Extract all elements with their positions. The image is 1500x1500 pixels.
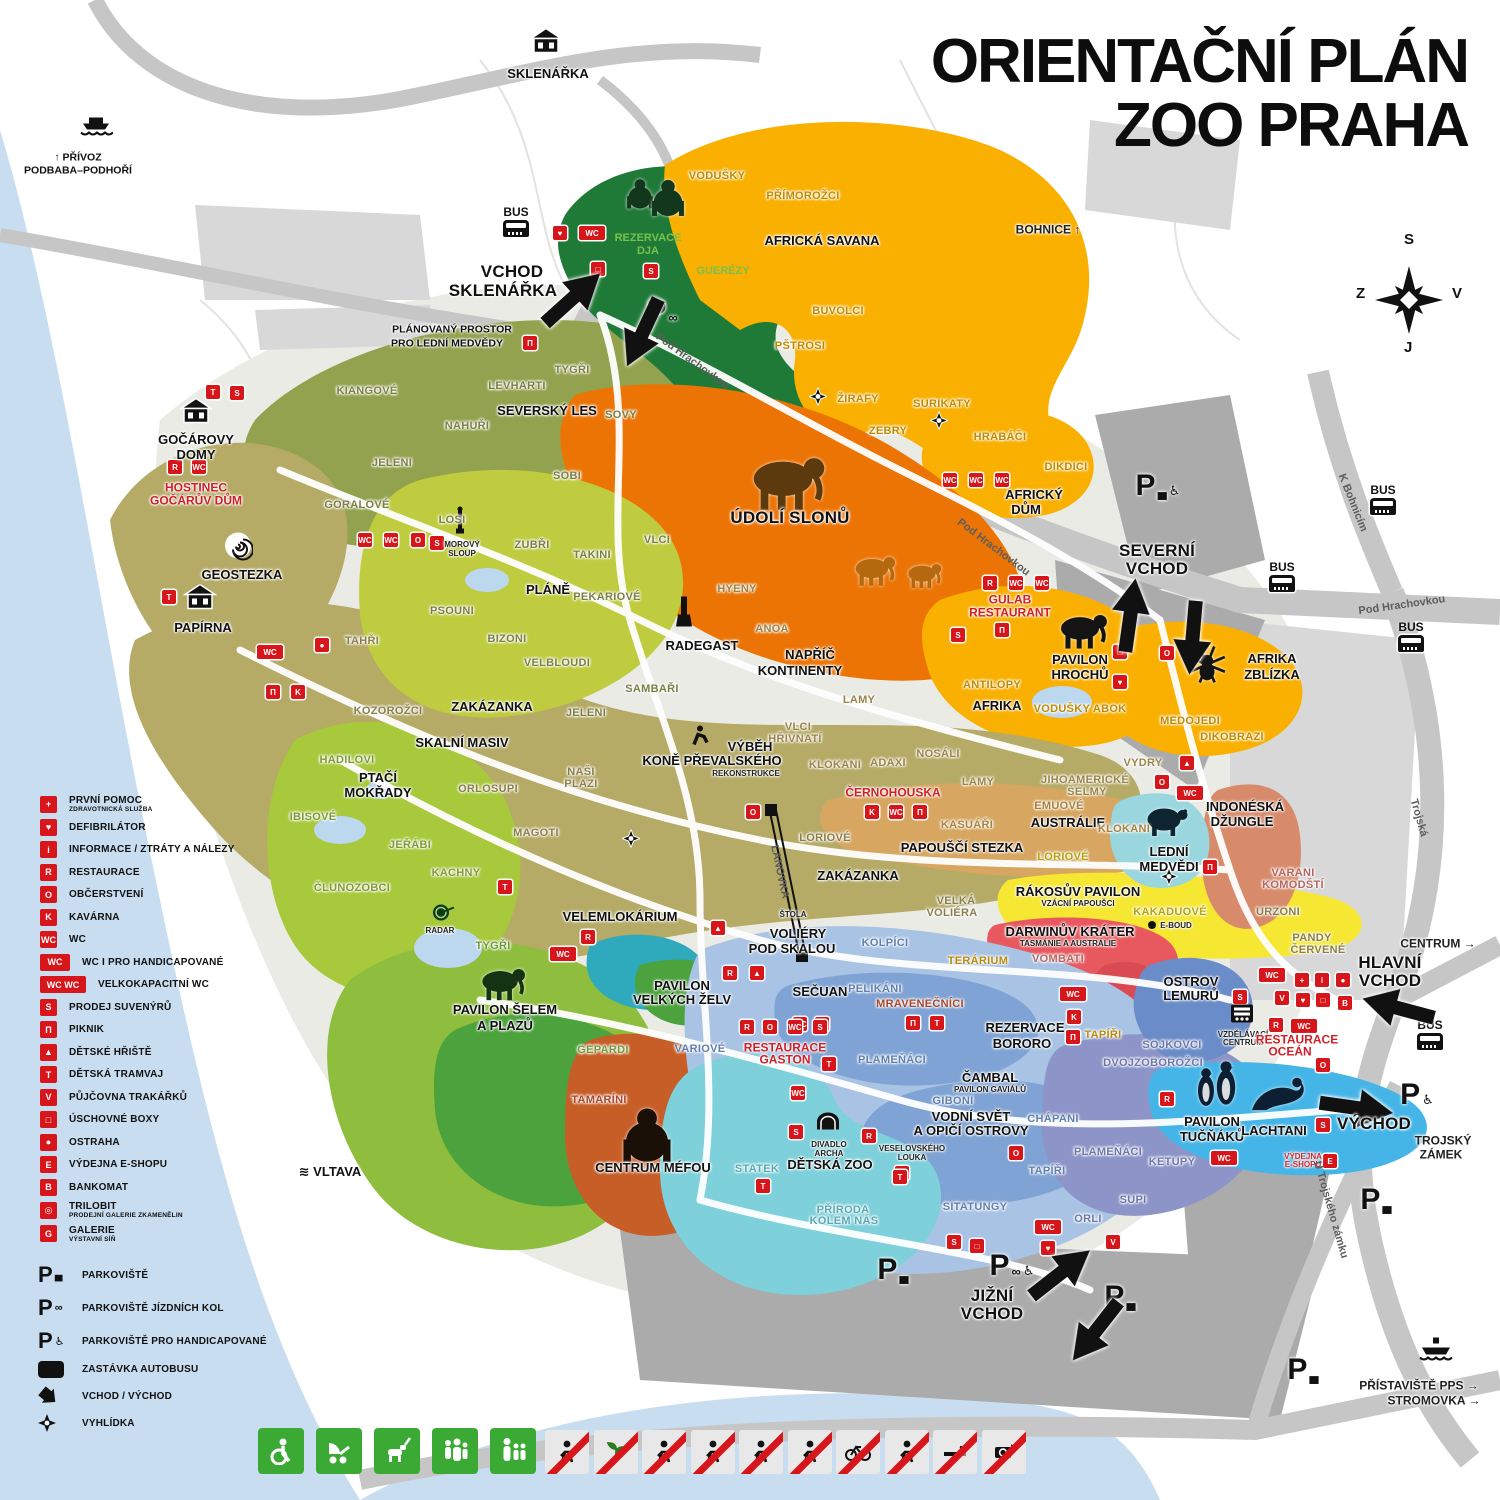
legend-icon-galerie: G: [40, 1225, 57, 1242]
legend-icon-defibril-tor: ♥: [40, 819, 57, 836]
legend-icon-ob-erstven: O: [40, 886, 57, 903]
facility-marker-icon[interactable]: S: [813, 1020, 827, 1034]
facility-marker-icon[interactable]: B: [1338, 996, 1352, 1010]
facility-marker-icon[interactable]: T: [162, 590, 176, 604]
map-label-zak-zanka: ZAKÁZANKA: [451, 700, 533, 714]
map-label-se-uan: SEČUAN: [793, 985, 848, 999]
map-label-ostrov: OSTROV: [1164, 975, 1219, 989]
legend-icon-wc: WC: [40, 931, 57, 948]
map-label-vz-cn-papou-ci: VZÁCNÍ PAPOUŠCI: [1041, 900, 1114, 908]
facility-marker-icon[interactable]: T: [822, 1057, 836, 1071]
legend-icon-velkokapacitn-wc: WC WC: [40, 976, 86, 993]
facility-marker-icon[interactable]: S: [644, 264, 658, 278]
facility-marker-icon[interactable]: WC: [791, 1086, 805, 1100]
map-label-tasm-nie-a-austr-lie: TASMÁNIE A AUSTRÁLIE: [1020, 940, 1116, 948]
map-label-pap-rna: PAPÍRNA: [174, 621, 232, 635]
map-label-ketupy: KETUPY: [1149, 1157, 1195, 1169]
legend-label-wc: WC: [69, 934, 86, 945]
facility-marker-icon[interactable]: S: [230, 386, 244, 400]
map-label-kolem-n-s: KOLEM NÁS: [810, 1216, 879, 1228]
facility-marker-icon[interactable]: WC: [1211, 1151, 1237, 1165]
map-label-radar: RADAR: [426, 927, 455, 935]
legend-item: WCWC I PRO HANDICAPOVANÉ: [40, 954, 235, 971]
legend-item: RRESTAURACE: [40, 864, 235, 881]
map-label-urzoni: URZONI: [1256, 907, 1300, 919]
legend-label-v-dejna-e-shopu: VÝDEJNA E-SHOPU: [69, 1159, 167, 1170]
no-climbing-icon: [691, 1430, 735, 1474]
map-label-ledn: LEDNÍ: [1150, 845, 1189, 859]
map-label-lachtani: LACHTANI: [1241, 1124, 1306, 1138]
bus-stop-icon[interactable]: BUS: [1370, 483, 1396, 515]
legend-icon-prodej-suven-r: S: [40, 999, 57, 1016]
map-label-rekonstrukce: REKONSTRUKCE: [712, 770, 780, 778]
facility-marker-icon[interactable]: R: [581, 930, 595, 944]
facility-marker-icon[interactable]: R: [1160, 1092, 1174, 1106]
map-label-d-m: DŮM: [1011, 503, 1041, 517]
map-label-adaxi: ADAXI: [870, 758, 906, 770]
parking-car-icon[interactable]: P▄: [1360, 1183, 1391, 1217]
map-label-guer-zy: GUERÉZY: [696, 266, 749, 278]
facility-marker-icon[interactable]: □: [1316, 993, 1330, 1007]
map-label-hroch: HROCHŮ: [1051, 668, 1108, 682]
legend-label-informace-ztr-ty-a-n-lezy: INFORMACE / ZTRÁTY A NÁLEZY: [69, 844, 235, 855]
animal-silhouette-ape: [647, 177, 689, 224]
facility-marker-icon[interactable]: R: [983, 576, 997, 590]
legend-item: VPŮJČOVNA TRAKÁŘKŮ: [40, 1089, 235, 1106]
map-label-bohnice: BOHNICE ↑: [1016, 224, 1081, 237]
map-label-pelik-ni: PELIKÁNI: [848, 984, 902, 996]
map-label-zub-i: ZUBŘI: [514, 540, 549, 552]
map-label-tola: ŠTOLA: [780, 911, 807, 919]
page-title: ORIENTAČNÍ PLÁN ZOO PRAHA: [931, 30, 1468, 159]
map-label-a-opi-ostrovy: A OPIČÍ OSTROVY: [913, 1124, 1028, 1138]
map-label-dikobrazi: DIKOBRAZI: [1200, 732, 1264, 744]
group-icon: [490, 1428, 536, 1474]
facility-marker-icon[interactable]: O: [1009, 1146, 1023, 1160]
map-label-pta: PTAČÍ: [359, 771, 397, 785]
facility-marker-icon[interactable]: E: [1323, 1154, 1337, 1168]
facility-marker-icon[interactable]: +: [1295, 973, 1309, 987]
animal-silhouette-quad: [848, 552, 896, 592]
legend-icon-kav-rna: K: [40, 909, 57, 926]
facility-marker-icon[interactable]: WC: [1177, 786, 1203, 800]
map-label-orli: ORLI: [1074, 1214, 1101, 1226]
legend-item: EVÝDEJNA E-SHOPU: [40, 1156, 235, 1173]
gocarovy-domy-icon: [179, 399, 213, 430]
map-label-bororo: BORORO: [993, 1037, 1052, 1051]
map-label-v-b-h: VÝBĚH: [728, 740, 773, 754]
map-label-vlci: VLCI: [644, 535, 670, 547]
facility-marker-icon[interactable]: □: [970, 1239, 984, 1253]
map-label-goralov: GORALOVÉ: [324, 500, 389, 512]
legend-icon-schovn-boxy: □: [40, 1111, 57, 1128]
map-label-p-voz: ↑ PŘÍVOZ: [54, 152, 101, 163]
legend-item: BBANKOMAT: [40, 1179, 235, 1196]
parking-hc-icon[interactable]: P♿: [1400, 1078, 1434, 1112]
facility-marker-icon[interactable]: ♥: [1296, 993, 1310, 1007]
map-label-dvojzoboro-ci: DVOJZOBOROŽCI: [1103, 1058, 1203, 1070]
facility-marker-icon[interactable]: WC: [1291, 1019, 1317, 1033]
facility-marker-icon[interactable]: ♥: [1113, 675, 1127, 689]
facility-marker-icon[interactable]: T: [893, 1170, 907, 1184]
map-label-anoa: ANOA: [755, 624, 789, 636]
facility-marker-icon[interactable]: Π: [266, 685, 280, 699]
legend-label-prodej-suven-r: PRODEJ SUVENÝRŮ: [69, 1002, 171, 1013]
map-label-voli-ra: VOLIÉRA: [927, 908, 978, 920]
facility-marker-icon[interactable]: WC: [1035, 1220, 1061, 1234]
legend-item: ◎TRILOBITPRODEJNÍ GALERIE ZKAMENĚLIN: [40, 1201, 235, 1219]
compass-s: J: [1404, 339, 1412, 356]
compass-w: Z: [1356, 285, 1365, 302]
legend-item: ▲DĚTSKÉ HŘIŠTĚ: [40, 1044, 235, 1061]
map-label-emuov: EMUOVÉ: [1034, 801, 1083, 813]
facility-marker-icon[interactable]: Π: [913, 805, 927, 819]
entrance-arrow-icon: [1164, 599, 1215, 679]
map-label-ji-n: JIŽNÍ: [971, 1287, 1014, 1305]
map-label-domy: DOMY: [177, 448, 216, 462]
facility-marker-icon[interactable]: K: [865, 805, 879, 819]
map-label-afrika: AFRIKA: [972, 699, 1021, 713]
legend-label-ob-erstven: OBČERSTVENÍ: [69, 889, 143, 900]
facility-marker-icon[interactable]: WC: [889, 805, 903, 819]
facility-marker-icon[interactable]: T: [930, 1016, 944, 1030]
pram-icon: [316, 1428, 362, 1474]
facility-marker-icon[interactable]: WC: [995, 473, 1009, 487]
legend-services: +PRVNÍ POMOCZDRAVOTNICKÁ SLUŽBA♥DEFIBRIL…: [40, 795, 235, 1248]
facility-marker-icon[interactable]: V: [1275, 991, 1289, 1005]
facility-marker-icon[interactable]: O: [1316, 1058, 1330, 1072]
facility-marker-icon[interactable]: S: [430, 536, 444, 550]
map-label-rezervace: REZERVACE: [986, 1021, 1065, 1035]
map-label-darwin-v-kr-ter: DARWINŮV KRÁTER: [1005, 925, 1134, 939]
map-label-d-ungle: DŽUNGLE: [1211, 815, 1274, 829]
animal-silhouette-quad: [902, 560, 942, 594]
facility-marker-icon[interactable]: R: [740, 1020, 754, 1034]
no-flash-photo-icon: [982, 1430, 1026, 1474]
map-label-sklen-ka: SKLENÁŘKA: [507, 67, 589, 81]
map-label-na-i: NAŠI: [567, 767, 594, 779]
no-smoking-icon: [933, 1430, 977, 1474]
map-label-radegast: RADEGAST: [666, 639, 739, 653]
map-label-vchod: VCHOD: [961, 1305, 1023, 1323]
map-label-pavilon: PAVILON: [654, 979, 710, 993]
map-label-variov: VARIOVÉ: [675, 1044, 726, 1056]
map-label-nap: NAPŘÍČ: [785, 648, 835, 662]
no-feeding-icon: [545, 1430, 589, 1474]
map-label-takini: TAKINI: [573, 550, 611, 562]
facility-marker-icon[interactable]: ▲: [711, 921, 725, 935]
map-label-ch-pani: CHÁPANI: [1027, 1114, 1078, 1126]
map-label-voli-ry: VOLIÉRY: [770, 927, 827, 941]
map-label-d-tsk-zoo: DĚTSKÁ ZOO: [787, 1158, 872, 1172]
map-label-tah-i: TAHŘI: [345, 636, 379, 648]
map-label-lamy: LAMY: [962, 777, 994, 789]
facility-marker-icon[interactable]: R: [1269, 1018, 1283, 1032]
facility-marker-icon[interactable]: ▲: [750, 966, 764, 980]
radegast-statue-icon: [676, 595, 692, 634]
legend-icon-wc-i-pro-handicapovan: WC: [40, 954, 70, 971]
legend-label-galerie: GALERIEVÝSTAVNÍ SÍŇ: [69, 1225, 116, 1243]
map-label-bizoni: BIZONI: [487, 634, 526, 646]
no-teasing-icon: [739, 1430, 783, 1474]
map-label-centrum: CENTRUM →: [1400, 938, 1475, 951]
map-label-louka: LOUKA: [898, 1154, 926, 1162]
legend-icon-v-dejna-e-shopu: E: [40, 1156, 57, 1173]
map-label-hadilovi: HADILOVI: [320, 755, 375, 767]
vzdelavaci-centrum-icon: [1231, 1005, 1253, 1028]
map-label-je-bi: JEŘÁBI: [389, 840, 431, 852]
map-label-velemlok-rium: VELEMLOKÁRIUM: [563, 910, 678, 924]
legend-item: VCHOD / VÝCHOD: [38, 1385, 267, 1407]
map-label-geostezka: GEOSTEZKA: [202, 568, 283, 582]
map-label-pandy: PANDY: [1292, 933, 1331, 945]
facility-marker-icon[interactable]: WC: [1259, 968, 1285, 982]
map-label-psouni: PSOUNI: [430, 606, 474, 618]
map-label-medv-di: MEDVĚDI: [1139, 860, 1198, 874]
map-label-kontinenty: KONTINENTY: [758, 664, 843, 678]
animal-silhouette-quad: [1052, 609, 1108, 654]
map-label-go-r-v-d-m: GOČÁRŮV DŮM: [150, 495, 242, 508]
facility-marker-icon[interactable]: V: [1106, 1235, 1120, 1249]
bus-stop-icon[interactable]: BUS: [1269, 560, 1295, 592]
map-label-v-chod: VÝCHOD: [1337, 1115, 1411, 1133]
legend-item: ZASTÁVKA AUTOBUSU: [38, 1361, 267, 1378]
facility-marker-icon[interactable]: WC: [969, 473, 983, 487]
facility-marker-icon[interactable]: K: [1067, 1010, 1081, 1024]
facility-marker-icon[interactable]: T: [756, 1179, 770, 1193]
legend-item: P∞PARKOVIŠTĚ JÍZDNÍCH KOL: [38, 1295, 267, 1321]
map-label-pavilon: PAVILON: [1052, 653, 1108, 667]
facility-marker-icon[interactable]: S: [1233, 990, 1247, 1004]
no-picking-plants-icon: [594, 1430, 638, 1474]
viewpoint-icon: [809, 388, 827, 411]
facility-marker-icon[interactable]: i: [1315, 973, 1329, 987]
map-label-dol-slon: ÚDOLÍ SLONŮ: [730, 509, 849, 527]
facility-marker-icon[interactable]: O: [763, 1020, 777, 1034]
map-label-oce-n: OCEÁN: [1268, 1046, 1311, 1059]
map-label-nos-li: NOSÁLI: [916, 749, 959, 761]
legend-label-schovn-boxy: ÚSCHOVNÉ BOXY: [69, 1114, 159, 1125]
facility-marker-icon[interactable]: ♥: [553, 226, 567, 240]
map-label-mravene-n-ci: MRAVENEČNÍCI: [876, 999, 964, 1011]
map-label-jeleni: JELENI: [566, 708, 606, 720]
map-label-kiangov: KIANGOVÉ: [336, 386, 397, 398]
map-label-afrika: AFRIKA: [1247, 652, 1296, 666]
map-label-nahu-i: NAHUŘI: [445, 421, 490, 433]
map-label-loriov: LORIOVÉ: [799, 833, 851, 845]
map-label-plame-ci: PLAMEŇÁCI: [858, 1055, 926, 1067]
legend-label-defibril-tor: DEFIBRILÁTOR: [69, 822, 146, 833]
ferry-icon: [79, 114, 113, 143]
map-label-stromovka: STROMOVKA →: [1388, 1395, 1481, 1408]
map-label-zbl-zka: ZBLÍZKA: [1244, 668, 1300, 682]
facility-marker-icon[interactable]: Π: [1066, 1030, 1080, 1044]
legend-item: ●OSTRAHA: [40, 1134, 235, 1151]
legend-icon-p-j-ovna-trak-k: V: [40, 1089, 57, 1106]
facility-marker-icon[interactable]: O: [411, 533, 425, 547]
legend-label-zast-vka-autobusu: ZASTÁVKA AUTOBUSU: [82, 1364, 198, 1375]
map-label-severn: SEVERNÍ: [1119, 542, 1195, 560]
legend-label-prvn-pomoc: PRVNÍ POMOCZDRAVOTNICKÁ SLUŽBA: [69, 795, 152, 813]
wheelchair-icon: [258, 1428, 304, 1474]
map-label-kozoro-ci: KOZOROŽCI: [354, 706, 423, 718]
map-label-r-kos-v-pavilon: RÁKOSŮV PAVILON: [1016, 885, 1140, 899]
facility-marker-icon[interactable]: WC: [788, 1020, 802, 1034]
map-label-pekariov: PEKARIOVÉ: [573, 592, 641, 604]
facility-marker-icon[interactable]: WC: [358, 533, 372, 547]
facility-marker-icon[interactable]: ●: [315, 638, 329, 652]
legend-item: +PRVNÍ POMOCZDRAVOTNICKÁ SLUŽBA: [40, 795, 235, 813]
map-label-hlavn: HLAVNÍ: [1358, 954, 1421, 972]
map-label-orlosupi: ORLOSUPI: [458, 784, 518, 796]
map-label-dikdici: DIKDICI: [1044, 462, 1087, 474]
legend-label-trilobit: TRILOBITPRODEJNÍ GALERIE ZKAMENĚLIN: [69, 1201, 183, 1219]
facility-marker-icon[interactable]: T: [498, 880, 512, 894]
facility-marker-icon[interactable]: ▲: [1180, 756, 1194, 770]
facility-marker-icon[interactable]: WC: [579, 226, 605, 240]
legend-item: ♥DEFIBRILÁTOR: [40, 819, 235, 836]
legend-label-wc-i-pro-handicapovan: WC I PRO HANDICAPOVANÉ: [82, 957, 223, 968]
legend-icon-zast-vka-autobusu: [38, 1361, 72, 1378]
map-label-centrum-m-fou: CENTRUM MÉFOU: [595, 1161, 711, 1175]
map-label-jeleni: JELENI: [372, 458, 412, 470]
facility-marker-icon[interactable]: K: [291, 685, 305, 699]
map-label-pavilon-elem: PAVILON ŠELEM: [453, 1003, 557, 1017]
map-label-sklen-ka: SKLENÁŘKA: [449, 282, 558, 300]
map-label-rezervace: REZERVACE: [615, 233, 682, 245]
facility-marker-icon[interactable]: ●: [1336, 973, 1350, 987]
bus-stop-icon[interactable]: BUS: [1398, 620, 1424, 652]
legend-icon-bankomat: B: [40, 1179, 57, 1196]
map-label-skaln-masiv: SKALNÍ MASIV: [415, 736, 508, 750]
legend-label-d-tsk-tramvaj: DĚTSKÁ TRAMVAJ: [69, 1069, 163, 1080]
legend-icon-d-tsk-tramvaj: T: [40, 1066, 57, 1083]
legend-item: KKAVÁRNA: [40, 909, 235, 926]
animal-silhouette-quad: [474, 964, 526, 1006]
facility-marker-icon[interactable]: R: [723, 966, 737, 980]
map-label-e-boud: E-BOUD: [1160, 922, 1192, 930]
compass-e: V: [1452, 285, 1462, 302]
legend-transport: P▄PARKOVIŠTĚP∞PARKOVIŠTĚ JÍZDNÍCH KOLP♿P…: [38, 1262, 267, 1439]
parking-car-icon[interactable]: P▄: [877, 1253, 908, 1287]
map-label-buvolci: BUVOLCI: [812, 306, 864, 318]
map-label-giboni: GIBONI: [933, 1096, 974, 1108]
facility-marker-icon[interactable]: S: [789, 1125, 803, 1139]
parking-car-icon[interactable]: P▄: [1287, 1353, 1318, 1387]
facility-marker-icon[interactable]: T: [206, 385, 220, 399]
legend-label-parkovi-t-pro-handicapovan: PARKOVIŠTĚ PRO HANDICAPOVANÉ: [82, 1336, 267, 1347]
animal-silhouette-penguin: [1196, 1068, 1216, 1113]
legend-item: P♿PARKOVIŠTĚ PRO HANDICAPOVANÉ: [38, 1328, 267, 1354]
legend-label-velkokapacitn-wc: VELKOKAPACITNÍ WC: [98, 979, 209, 990]
dog-on-leash-icon: [374, 1428, 420, 1474]
map-label-gaston: GASTON: [759, 1054, 810, 1067]
legend-icon-d-tsk-h-i-t: ▲: [40, 1044, 57, 1061]
map-label-zebry: ZEBRY: [869, 426, 907, 438]
zoo-praha-map: ORIENTAČNÍ PLÁN ZOO PRAHA S V J Z +PRVNÍ…: [0, 0, 1500, 1500]
viewpoint-icon: [622, 830, 640, 853]
legend-icon-restaurace: R: [40, 864, 57, 881]
geostezka-spiral-icon: [223, 531, 253, 566]
legend-label-ostraha: OSTRAHA: [69, 1137, 120, 1148]
legend-item: SPRODEJ SUVENÝRŮ: [40, 999, 235, 1016]
parking-car-hc-icon[interactable]: P▄♿: [1136, 469, 1181, 503]
map-label-losi: LOSI: [439, 515, 466, 527]
facility-marker-icon[interactable]: Π: [523, 336, 537, 350]
pps-pier-icon: [1418, 1336, 1454, 1369]
map-label-ibisov: IBISOVÉ: [290, 812, 337, 824]
facility-marker-icon[interactable]: WC: [1060, 987, 1086, 1001]
map-label-lunozobci: ČLUNOZOBCI: [314, 883, 390, 895]
facility-marker-icon[interactable]: WC: [943, 473, 957, 487]
facility-marker-icon[interactable]: WC: [257, 645, 283, 659]
map-label-mok-ady: MOKŘADY: [344, 786, 411, 800]
facility-marker-icon[interactable]: WC: [1035, 576, 1049, 590]
facility-marker-icon[interactable]: R: [862, 1129, 876, 1143]
map-label-antilopy: ANTILOPY: [963, 680, 1021, 692]
facility-marker-icon[interactable]: Π: [995, 623, 1009, 637]
map-label-gulab: GULAB: [989, 594, 1032, 607]
map-label-hostinec: HOSTINEC: [165, 482, 227, 495]
facility-marker-icon[interactable]: S: [947, 1235, 961, 1249]
map-label-vydry: VYDRY: [1124, 758, 1163, 770]
e-boud-dot: [1147, 917, 1157, 935]
map-label-erven: ČERVENÉ: [1290, 945, 1345, 957]
legend-label-bankomat: BANKOMAT: [69, 1182, 128, 1193]
map-label-pavilon: PAVILON: [1184, 1115, 1240, 1129]
facility-marker-icon[interactable]: WC: [550, 947, 576, 961]
map-label-p-trosi: PŠTROSI: [775, 341, 825, 353]
legend-item: WCWC: [40, 931, 235, 948]
map-label-tamar-ni: TAMARÍNI: [571, 1095, 626, 1107]
no-scooter-icon: [885, 1430, 929, 1474]
legend-icon-informace-ztr-ty-a-n-lezy: i: [40, 841, 57, 858]
map-label-lamy: LAMY: [843, 695, 875, 707]
facility-marker-icon[interactable]: WC: [384, 533, 398, 547]
map-label-hyeny: HYENY: [717, 584, 756, 596]
map-label-a-plaz: A PLAZŮ: [477, 1019, 533, 1033]
map-label-tap-i: TAPÍŘI: [1028, 1166, 1065, 1178]
map-label-vchod: VCHOD: [1359, 972, 1421, 990]
facility-marker-icon[interactable]: O: [746, 805, 760, 819]
map-label-tyg-i: TYGŘI: [554, 365, 589, 377]
map-label-seversk-les: SEVERSKÝ LES: [497, 404, 597, 418]
facility-marker-icon[interactable]: Π: [906, 1016, 920, 1030]
legend-label-p-j-ovna-trak-k: PŮJČOVNA TRAKÁŘKŮ: [69, 1092, 187, 1103]
map-label-kon-p-evalsk-ho: KONĚ PŘEVALSKÉHO: [642, 754, 781, 768]
footer: ZOOPRAHA Vydala Zoologická zahrada hl. m…: [0, 1415, 1500, 1500]
map-label-africk-savana: AFRICKÁ SAVANA: [764, 234, 879, 248]
animal-silhouette-penguin: [1215, 1061, 1238, 1112]
facility-marker-icon[interactable]: Π: [1203, 860, 1217, 874]
map-label-austr-lie: AUSTRÁLIE: [1031, 816, 1105, 830]
no-running-icon: [788, 1430, 832, 1474]
map-label-kachny: KACHNY: [432, 868, 481, 880]
facility-marker-icon[interactable]: S: [951, 628, 965, 642]
compass-rose: S V J Z: [1362, 245, 1457, 355]
map-label-hrab-i: HRABÁČI: [974, 432, 1027, 444]
map-label-go-rovy: GOČÁROVY: [158, 433, 234, 447]
map-label-tyg-i: TYGŘI: [475, 941, 510, 953]
bus-stop-icon[interactable]: BUS: [503, 205, 529, 237]
facility-marker-icon[interactable]: O: [1155, 775, 1169, 789]
legend-item: GGALERIEVÝSTAVNÍ SÍŇ: [40, 1225, 235, 1243]
construction-icon: [689, 725, 711, 752]
legend-label-d-tsk-h-i-t: DĚTSKÉ HŘIŠTĚ: [69, 1047, 152, 1058]
legend-icon-vchod-v-chod: [38, 1385, 72, 1407]
map-label-trojsk: TROJSKÝ: [1415, 1135, 1472, 1148]
facility-marker-icon[interactable]: WC: [1009, 576, 1023, 590]
